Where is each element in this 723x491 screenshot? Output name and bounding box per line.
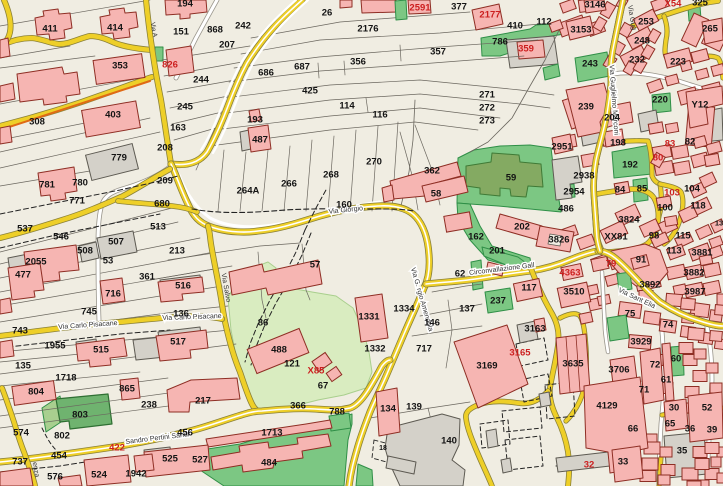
svg-text:537: 537 <box>17 224 33 235</box>
svg-text:515: 515 <box>93 345 110 356</box>
svg-text:3892: 3892 <box>639 280 660 291</box>
svg-text:XX81: XX81 <box>604 232 628 243</box>
svg-text:687: 687 <box>294 62 310 73</box>
svg-text:507: 507 <box>108 237 124 248</box>
svg-text:576: 576 <box>47 472 63 483</box>
svg-text:242: 242 <box>235 21 251 32</box>
svg-text:112: 112 <box>536 17 551 28</box>
svg-text:454: 454 <box>51 451 68 462</box>
svg-text:139: 139 <box>406 402 422 413</box>
svg-text:488: 488 <box>271 345 287 356</box>
svg-text:3706: 3706 <box>608 365 629 376</box>
svg-text:X54: X54 <box>665 0 683 10</box>
svg-text:3824: 3824 <box>618 215 640 226</box>
svg-text:517: 517 <box>170 337 186 348</box>
svg-text:244: 244 <box>193 75 210 86</box>
svg-text:61: 61 <box>661 375 672 386</box>
svg-text:362: 362 <box>424 166 440 177</box>
svg-text:826: 826 <box>162 60 178 71</box>
svg-text:30: 30 <box>669 403 680 414</box>
svg-text:3169: 3169 <box>476 361 497 372</box>
svg-text:3165: 3165 <box>509 348 531 359</box>
svg-text:781: 781 <box>39 180 56 191</box>
svg-text:66: 66 <box>628 424 639 435</box>
svg-text:52: 52 <box>702 403 713 414</box>
svg-text:456: 456 <box>177 428 193 439</box>
svg-text:33: 33 <box>618 457 629 468</box>
svg-text:272: 272 <box>479 103 495 114</box>
svg-text:207: 207 <box>219 40 235 51</box>
svg-text:75: 75 <box>625 309 636 320</box>
svg-text:1334: 1334 <box>393 304 415 315</box>
svg-text:220: 220 <box>652 95 668 106</box>
svg-text:53: 53 <box>103 256 114 267</box>
svg-text:193: 193 <box>247 115 263 126</box>
svg-text:140: 140 <box>441 436 457 447</box>
svg-text:217: 217 <box>195 396 211 407</box>
svg-text:2176: 2176 <box>357 24 378 35</box>
svg-text:201: 201 <box>489 246 506 257</box>
svg-text:356: 356 <box>350 57 366 68</box>
svg-text:135: 135 <box>15 361 32 372</box>
svg-text:121: 121 <box>284 359 301 370</box>
svg-text:104: 104 <box>684 184 701 195</box>
svg-text:574: 574 <box>13 428 30 439</box>
svg-text:477: 477 <box>15 270 31 281</box>
svg-text:39: 39 <box>707 425 718 436</box>
svg-text:4363: 4363 <box>559 268 580 279</box>
svg-text:411: 411 <box>42 24 58 35</box>
svg-text:803: 803 <box>72 410 88 421</box>
svg-text:160: 160 <box>336 200 352 211</box>
svg-text:82: 82 <box>685 137 696 148</box>
svg-text:410: 410 <box>507 21 523 32</box>
svg-text:1331: 1331 <box>358 312 380 323</box>
svg-text:325: 325 <box>692 0 709 9</box>
svg-text:865: 865 <box>119 384 136 395</box>
svg-text:3826: 3826 <box>548 235 569 246</box>
svg-text:265: 265 <box>702 24 719 35</box>
svg-text:377: 377 <box>451 2 467 13</box>
svg-text:X85: X85 <box>308 366 326 377</box>
svg-text:59: 59 <box>506 173 517 184</box>
svg-text:359: 359 <box>518 44 534 55</box>
svg-text:270: 270 <box>366 157 382 168</box>
svg-text:162: 162 <box>468 232 484 243</box>
svg-text:273: 273 <box>479 116 495 127</box>
svg-text:425: 425 <box>302 86 319 97</box>
svg-text:366: 366 <box>290 401 306 412</box>
svg-text:113: 113 <box>666 246 681 257</box>
svg-text:788: 788 <box>329 407 345 418</box>
svg-text:83: 83 <box>665 139 676 150</box>
svg-text:98: 98 <box>649 231 660 242</box>
svg-text:3987: 3987 <box>684 287 705 298</box>
svg-text:118: 118 <box>690 201 705 212</box>
svg-text:151: 151 <box>173 27 190 38</box>
svg-text:3881: 3881 <box>691 248 713 259</box>
svg-text:57: 57 <box>310 260 321 271</box>
svg-text:253: 253 <box>638 17 654 28</box>
svg-text:72: 72 <box>650 360 661 371</box>
svg-text:779: 779 <box>111 153 127 164</box>
svg-text:716: 716 <box>105 289 121 300</box>
svg-text:524: 524 <box>91 470 108 481</box>
svg-text:116: 116 <box>372 110 387 121</box>
svg-text:36: 36 <box>685 424 696 435</box>
svg-text:3929: 3929 <box>630 337 651 348</box>
svg-text:79: 79 <box>606 259 617 270</box>
svg-text:60: 60 <box>671 354 682 365</box>
svg-text:65: 65 <box>665 419 676 430</box>
svg-text:361: 361 <box>139 272 156 283</box>
svg-text:80: 80 <box>653 153 664 164</box>
svg-text:67: 67 <box>318 381 329 392</box>
svg-text:414: 414 <box>107 23 124 34</box>
svg-text:26: 26 <box>322 8 333 19</box>
svg-text:868: 868 <box>207 25 223 36</box>
svg-text:3510: 3510 <box>563 287 584 298</box>
svg-text:71: 71 <box>639 385 650 396</box>
svg-text:353: 353 <box>112 61 128 72</box>
svg-text:786: 786 <box>492 37 508 48</box>
svg-text:1332: 1332 <box>364 344 385 355</box>
svg-text:804: 804 <box>28 387 45 398</box>
svg-text:2591: 2591 <box>409 3 431 14</box>
svg-text:136: 136 <box>173 309 189 320</box>
svg-text:487: 487 <box>252 135 268 146</box>
svg-text:194: 194 <box>177 0 194 10</box>
svg-text:271: 271 <box>479 90 496 101</box>
svg-text:13: 13 <box>715 219 723 228</box>
svg-text:146: 146 <box>424 318 440 329</box>
svg-text:32: 32 <box>584 460 595 471</box>
svg-text:1955: 1955 <box>44 341 66 352</box>
svg-text:74: 74 <box>663 320 674 331</box>
svg-text:422: 422 <box>109 443 125 454</box>
svg-text:486: 486 <box>558 204 574 215</box>
svg-text:18: 18 <box>379 445 387 452</box>
svg-text:239: 239 <box>578 102 594 113</box>
svg-text:232: 232 <box>629 55 645 66</box>
svg-text:802: 802 <box>54 431 70 442</box>
svg-text:743: 743 <box>12 326 28 337</box>
svg-text:Y12: Y12 <box>692 100 709 111</box>
svg-text:91: 91 <box>636 255 647 266</box>
svg-text:1942: 1942 <box>125 469 146 480</box>
svg-text:134: 134 <box>380 404 397 415</box>
svg-text:737: 737 <box>12 457 28 468</box>
svg-text:527: 527 <box>192 455 208 466</box>
svg-text:237: 237 <box>490 296 506 307</box>
svg-text:717: 717 <box>416 344 432 355</box>
svg-text:243: 243 <box>582 59 598 70</box>
svg-text:137: 137 <box>459 304 475 315</box>
svg-text:248: 248 <box>634 36 650 47</box>
svg-text:2177: 2177 <box>479 10 500 21</box>
svg-text:163: 163 <box>170 123 186 134</box>
svg-text:525: 525 <box>162 454 179 465</box>
svg-text:3882: 3882 <box>683 268 704 279</box>
svg-text:100: 100 <box>657 203 673 214</box>
svg-text:484: 484 <box>261 458 278 469</box>
svg-text:3153: 3153 <box>570 25 591 36</box>
svg-text:780: 780 <box>72 178 88 189</box>
svg-text:4129: 4129 <box>596 401 617 412</box>
svg-text:686: 686 <box>258 68 274 79</box>
svg-text:3163: 3163 <box>524 324 545 335</box>
svg-text:2951: 2951 <box>551 142 573 153</box>
svg-text:84: 84 <box>615 185 626 196</box>
svg-text:2954: 2954 <box>563 187 585 198</box>
svg-text:213: 213 <box>169 246 185 257</box>
svg-text:103: 103 <box>664 188 680 199</box>
svg-text:264A: 264A <box>237 186 260 197</box>
svg-text:513: 513 <box>150 222 166 233</box>
svg-text:208: 208 <box>157 143 173 154</box>
svg-text:114: 114 <box>339 101 355 112</box>
svg-text:198: 198 <box>610 138 626 149</box>
svg-text:204: 204 <box>604 113 621 124</box>
svg-text:546: 546 <box>53 232 69 243</box>
svg-text:62: 62 <box>455 269 466 280</box>
svg-text:745: 745 <box>81 307 98 318</box>
svg-text:268: 268 <box>323 170 339 181</box>
svg-text:117: 117 <box>521 283 536 294</box>
svg-text:403: 403 <box>105 110 121 121</box>
svg-text:58: 58 <box>431 189 442 200</box>
svg-text:357: 357 <box>430 47 446 58</box>
svg-text:308: 308 <box>29 117 45 128</box>
svg-text:3146: 3146 <box>584 0 605 11</box>
svg-text:771: 771 <box>69 196 86 207</box>
svg-text:192: 192 <box>622 160 638 171</box>
svg-text:202: 202 <box>514 222 530 233</box>
svg-text:266: 266 <box>281 179 297 190</box>
svg-text:1718: 1718 <box>55 373 76 384</box>
svg-text:680: 680 <box>154 199 170 210</box>
svg-text:86: 86 <box>258 318 269 329</box>
svg-text:35: 35 <box>677 446 688 457</box>
svg-text:85: 85 <box>637 184 648 195</box>
svg-text:2055: 2055 <box>25 257 47 268</box>
svg-text:223: 223 <box>670 57 686 68</box>
svg-text:1713: 1713 <box>261 428 282 439</box>
svg-text:115: 115 <box>675 231 691 242</box>
svg-text:508: 508 <box>77 246 93 257</box>
svg-text:209: 209 <box>157 176 173 187</box>
svg-text:3635: 3635 <box>562 359 584 370</box>
svg-text:245: 245 <box>177 102 194 113</box>
svg-text:2938: 2938 <box>573 171 594 182</box>
svg-text:238: 238 <box>141 400 157 411</box>
svg-text:516: 516 <box>175 281 191 292</box>
